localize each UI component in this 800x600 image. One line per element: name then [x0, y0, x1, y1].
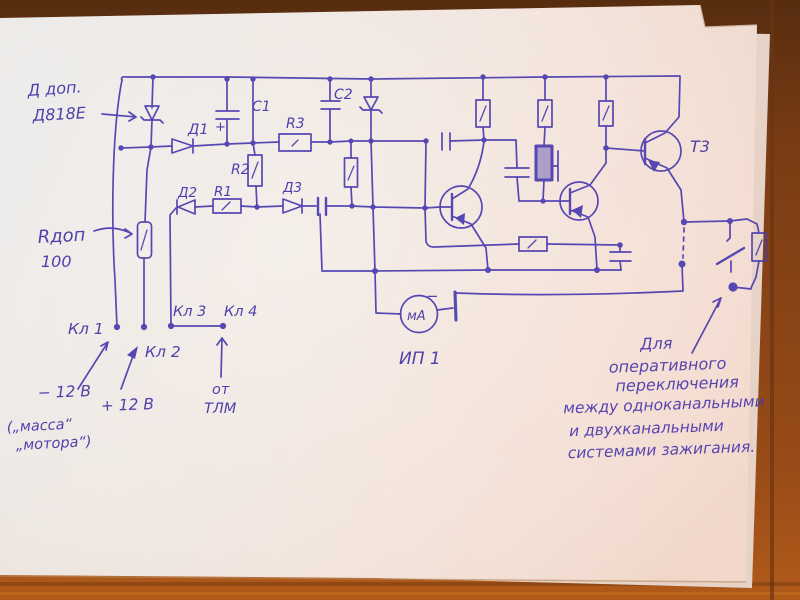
- label-meter-minus: −: [426, 287, 439, 305]
- label-kl3: Кл 3: [173, 304, 206, 320]
- label-d2: Д2: [177, 185, 197, 201]
- label-d-dop-2: Д818Е: [31, 103, 87, 125]
- label-r1: R1: [214, 184, 232, 200]
- label-kl1: Кл 1: [68, 320, 104, 338]
- label-t3: Т3: [690, 137, 710, 156]
- label-ot: от: [212, 382, 230, 398]
- label-kl4: Кл 4: [224, 304, 257, 320]
- label-d3: Д3: [282, 180, 302, 196]
- label-c2: C2: [334, 87, 353, 103]
- schematic-svg: Д доп. Д818Е Д1 C1 + R2 R3 C2 Д2 R1 Д3 R…: [0, 0, 800, 600]
- label-tlm: ТЛМ: [204, 401, 237, 417]
- photo-of-schematic: Д доп. Д818Е Д1 C1 + R2 R3 C2 Д2 R1 Д3 R…: [0, 0, 800, 600]
- terminal-kl4: [220, 323, 226, 329]
- label-r-dop-value: 100: [41, 252, 72, 271]
- label-kl2: Кл 2: [145, 343, 181, 361]
- label-r-dop: Rдоп: [37, 225, 86, 248]
- label-d1: Д1: [187, 122, 209, 138]
- note-line-1: Для: [639, 334, 673, 354]
- label-ip1: ИП 1: [399, 349, 441, 369]
- terminal-kl2: [141, 324, 147, 330]
- label-c1: C1: [252, 99, 271, 115]
- label-r3: R3: [286, 116, 305, 132]
- label-d-dop-1: Д доп.: [26, 77, 82, 100]
- terminal-kl3: [168, 323, 174, 329]
- label-r2: R2: [231, 162, 250, 178]
- label-plus-12v: + 12 В: [101, 395, 155, 415]
- label-minus-12v: − 12 В: [38, 382, 92, 402]
- terminal-kl1: [114, 324, 120, 330]
- label-c1-plus: +: [215, 120, 226, 135]
- label-meter-ma: мА: [407, 309, 426, 324]
